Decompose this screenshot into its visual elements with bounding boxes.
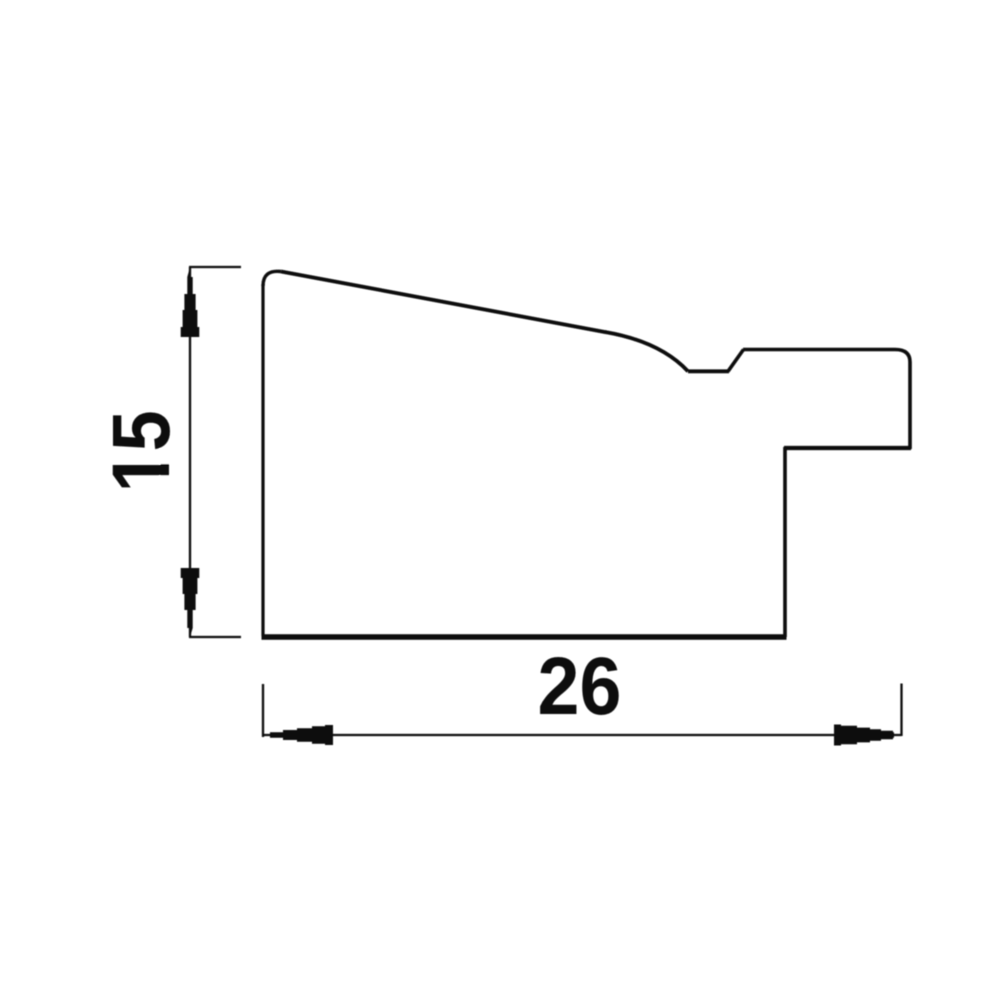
svg-text:15: 15 [94, 410, 187, 492]
svg-text:26: 26 [538, 640, 622, 732]
